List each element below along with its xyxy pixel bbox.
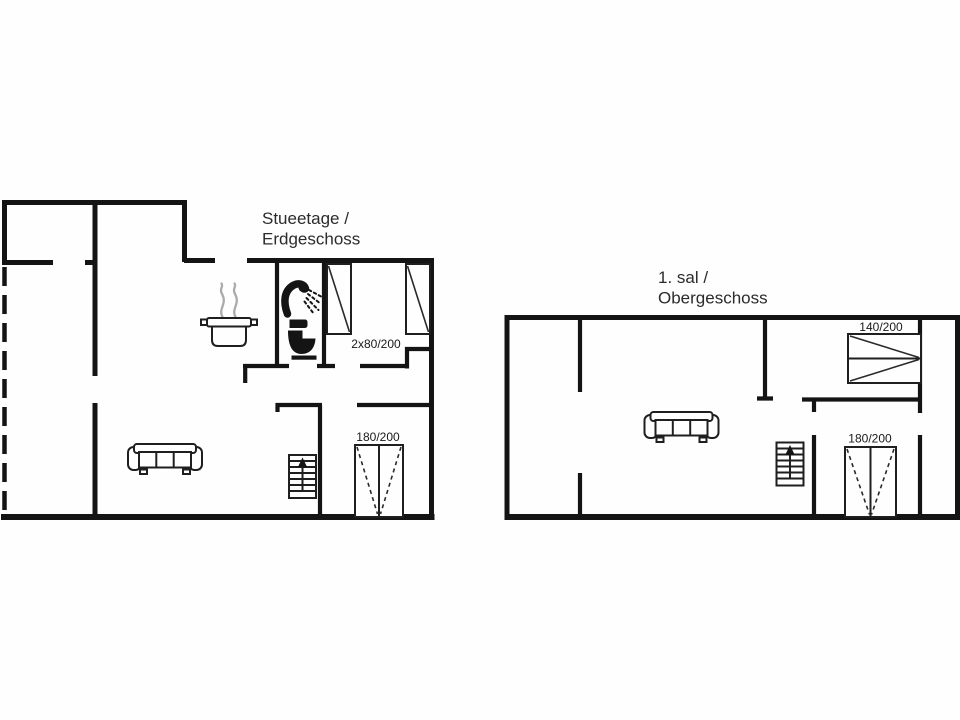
stairs-up-icon [289, 455, 316, 498]
hand-shower-icon [285, 283, 322, 314]
upper-floor-title-line1: 1. sal / [658, 268, 708, 287]
sofa-icon [645, 412, 719, 442]
sofa-icon [128, 444, 202, 474]
double-bed-180-icon [845, 447, 896, 517]
floor-plan-document: Stueetage / Erdgeschoss [0, 0, 960, 720]
ground-floor-title-line2: Erdgeschoss [262, 230, 360, 249]
cooking-pot-icon [201, 318, 257, 346]
steam-icon [221, 284, 237, 318]
double-bed-140-icon [848, 334, 921, 383]
bed-size-label: 140/200 [859, 320, 903, 334]
double-bed-180-icon [355, 445, 403, 517]
toilet-icon [288, 320, 317, 360]
bed-size-label: 180/200 [848, 432, 892, 446]
bed-size-label: 180/200 [356, 430, 400, 444]
single-beds-2x80-icon [327, 264, 430, 334]
upper-floor-title-line2: Obergeschoss [658, 289, 768, 308]
floor-plans-svg: Stueetage / Erdgeschoss [0, 0, 960, 720]
bed-size-label: 2x80/200 [351, 337, 401, 351]
ground-floor-title-line1: Stueetage / [262, 209, 349, 228]
ground-floor-plan: Stueetage / Erdgeschoss [1, 200, 435, 519]
stairs-up-icon [777, 443, 804, 486]
upper-floor-plan: 1. sal / Obergeschoss 140/200 [505, 268, 960, 519]
